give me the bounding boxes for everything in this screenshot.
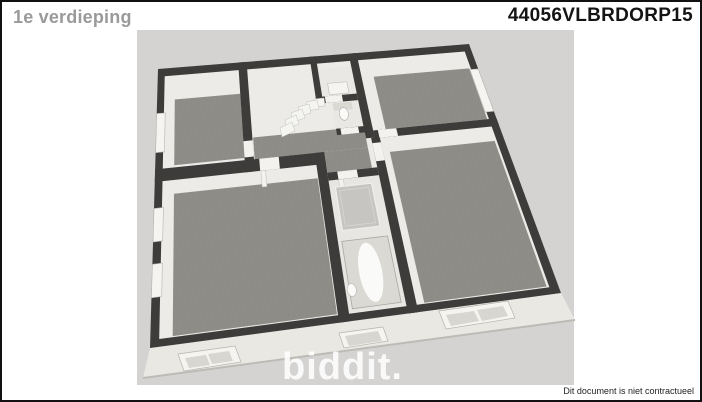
document-page: 1e verdieping 44056VLBRDORP15 biddit. Di… bbox=[0, 0, 702, 402]
page-title: 1e verdieping bbox=[13, 7, 132, 28]
floor-plan-image bbox=[2, 2, 702, 402]
bedroom-top-left-floor bbox=[174, 94, 244, 166]
property-code: 44056VLBRDORP15 bbox=[508, 5, 693, 27]
biddit-watermark: biddit. bbox=[282, 348, 403, 386]
bedroom-bottom-left-floor bbox=[173, 178, 337, 336]
window-left-bottom bbox=[151, 263, 162, 298]
window-left-middle bbox=[153, 208, 163, 243]
window-left-top bbox=[156, 113, 166, 153]
bedroom-top-right-floor bbox=[374, 68, 488, 129]
door-bedroom-top-left bbox=[243, 140, 253, 157]
wc-sink bbox=[328, 82, 349, 95]
disclaimer-text: Dit document is niet contractueel bbox=[563, 386, 694, 396]
door-bedroom-bottom-left bbox=[259, 157, 280, 171]
